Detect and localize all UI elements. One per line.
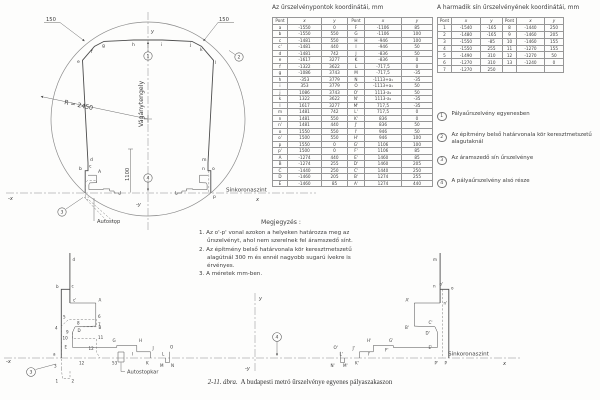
axis-minus-y-label: -y: [245, 366, 251, 372]
callout-2-leader: [229, 51, 235, 55]
point-label: E: [65, 345, 68, 350]
autostop-label: Autostop: [97, 219, 121, 225]
notes-title: Megjegyzés :: [261, 219, 451, 226]
third-rail-points-table: Pont x y Pont x y 1-1540-1658-14402502-1…: [437, 17, 564, 73]
point-label: 8: [77, 321, 80, 326]
point-label: D': [426, 331, 430, 336]
point-label: e: [77, 60, 80, 65]
point-label: G': [389, 338, 393, 343]
callout-3-num: 3: [30, 370, 33, 376]
point-label: N: [171, 363, 174, 368]
point-label: B': [405, 325, 409, 330]
detail-left-outline: [61, 253, 70, 358]
callout-3-num: 3: [61, 210, 64, 216]
callout-2-num: 2: [238, 55, 241, 61]
legend: 1 Pályaűrszelvény egyenesben 2 Az építmé…: [437, 111, 599, 188]
lower-pocket-right: [176, 175, 208, 194]
table-header-row: Pont x y Pont x y: [438, 18, 564, 25]
point-label: 3: [54, 364, 57, 369]
point-label: c: [72, 284, 74, 289]
point-label: h: [132, 42, 135, 48]
dim-150-right-label: 150: [219, 17, 229, 23]
point-label: D: [78, 328, 81, 333]
legend-text: Az építmény belső határvonala kör keresz…: [452, 132, 600, 146]
legend-item: 1 Pályaűrszelvény egyenesben: [437, 111, 599, 121]
point-label: A': [406, 298, 410, 303]
point-label: 4: [55, 326, 58, 331]
point-label: p: [213, 195, 216, 200]
legend-text: Pályaűrszelvény egyenesben: [452, 111, 530, 118]
legend-text: Az áramszedő sín űrszelvénye: [452, 155, 534, 162]
detail-left-pocket: [70, 303, 170, 362]
point-label: M: [160, 363, 164, 368]
table-row: 5-149031012-127050: [438, 52, 564, 59]
point-label: J': [352, 346, 355, 351]
point-label: m: [202, 158, 207, 163]
point-label: a: [53, 352, 56, 357]
point-label: H: [139, 338, 142, 343]
point-label: I: [132, 352, 133, 357]
legend-item: 4 A pályaűrszelvény alsó része: [437, 178, 599, 188]
table-row: 1-1540-1658-1440250: [438, 24, 564, 31]
axis-y-label: y: [150, 29, 155, 35]
callout-3-leader: [66, 198, 83, 210]
point-label: J: [152, 346, 154, 351]
point-label: K: [146, 361, 149, 366]
dim-53-label: 53: [112, 361, 118, 366]
point-label: A: [99, 298, 102, 303]
detail-diagram: Autostopkar 4 3 y -y -x x Sínkoronaszint…: [0, 245, 600, 395]
point-label: b: [79, 166, 82, 172]
point-label: n': [444, 301, 448, 306]
point-label: B: [99, 325, 102, 330]
legend-text: A pályaűrszelvény alsó része: [452, 178, 530, 185]
point-label: O: [170, 345, 173, 350]
callout-4-num: 4: [147, 176, 150, 182]
legend-num-1: 1: [437, 112, 447, 122]
table-row: 3-1550-8510-1460155: [438, 38, 564, 45]
dim-12-label: 12: [79, 361, 85, 366]
detail-right-outline: [440, 253, 449, 358]
rail-level-label: Sínkoronaszint: [226, 187, 268, 194]
point-label: 9: [66, 330, 69, 335]
point-label: n: [202, 167, 205, 172]
dim-150-left-leader: [44, 23, 85, 42]
point-label: o': [440, 282, 444, 287]
point-label: F': [385, 348, 388, 353]
dim-1100-label: 1100: [125, 168, 131, 181]
point-label: K': [355, 361, 359, 366]
table1-title: Az űrszelvénypontok koordinátái, mm: [272, 5, 383, 11]
table2-title: A harmadik sín űrszelvényének koordinátá…: [437, 5, 579, 11]
point-label: O': [334, 345, 338, 350]
track-axis-label: Vágánytengely: [137, 81, 145, 127]
callout-3-leader: [36, 364, 57, 370]
table-row: 6-127031013-12400: [438, 59, 564, 66]
table-row: 7-1270250: [438, 66, 564, 73]
figure-caption: 2-11. ábra.A budapesti metró űrszelvénye…: [0, 379, 600, 386]
note-line: 1. Az o'-p' vonal azokon a helyeken hatá…: [199, 229, 451, 237]
point-label: 5: [63, 315, 66, 320]
scanned-technical-figure: R = 2450 Vágánytengely 1100 150 150 1 2 …: [0, 0, 600, 400]
callout-4-num: 4: [276, 335, 279, 341]
point-label: c': [73, 298, 76, 303]
table-row: 4-155025511-1270155: [438, 45, 564, 52]
point-label: H': [367, 338, 371, 343]
autostop-arm-leader: [121, 363, 125, 372]
point-label: P: [445, 361, 448, 366]
axis-y-label: y: [258, 296, 263, 302]
callout-1-num: 1: [147, 54, 150, 60]
point-label: N': [331, 363, 335, 368]
point-label: o: [212, 167, 215, 172]
point-label: 11: [98, 335, 104, 340]
legend-item: 3 Az áramszedő sín űrszelvénye: [437, 155, 599, 165]
dim-150-right-leader: [204, 23, 235, 42]
point-label: d: [73, 257, 76, 262]
point-label: P': [435, 361, 439, 366]
point-label: G: [113, 338, 116, 343]
figure-title: A budapesti metró űrszelvénye egyenes pá…: [241, 379, 393, 386]
autostop-arm-label: Autostopkar: [127, 370, 159, 376]
point-label: g: [102, 44, 105, 49]
radius-label: R = 2450: [64, 99, 94, 112]
point-label: o: [451, 286, 454, 291]
table-row: 2-1480-1659-1460205: [438, 31, 564, 38]
axis-minus-x-label: -x: [6, 359, 12, 365]
point-label: d: [90, 157, 93, 163]
table-row: E-146085A'1274440: [273, 180, 433, 187]
legend-num-4: 4: [437, 179, 447, 189]
axis-minus-y-label: -y: [136, 202, 142, 208]
legend-num-3: 3: [437, 156, 447, 166]
clearance-points-table: Pont x y Pont x y a-15500F-110685b-15505…: [272, 17, 433, 187]
point-label: E': [429, 345, 433, 350]
axis-x-label: x: [502, 361, 507, 367]
radius-line: [41, 97, 148, 120]
autostop-arm: [118, 352, 124, 362]
axis-x-label: x: [255, 197, 260, 203]
point-label: k: [200, 47, 203, 53]
point-label: n: [433, 284, 436, 289]
center-cross: [144, 115, 152, 123]
point-label: j: [189, 42, 191, 48]
point-label: M': [343, 363, 348, 368]
rail-level-label: Sínkoronaszint: [448, 351, 490, 358]
legend-item: 2 Az építmény belső határvonala kör kere…: [437, 132, 599, 146]
axis-minus-x-label: -x: [8, 196, 14, 202]
point-label: L': [340, 352, 343, 357]
figure-number: 2-11. ábra.: [208, 379, 238, 386]
point-label: f: [91, 49, 93, 55]
dim-150-left-label: 150: [46, 17, 56, 23]
point-label: m: [433, 257, 437, 262]
point-label: l: [215, 60, 216, 66]
point-label: b: [56, 284, 59, 289]
point-label: 12: [89, 346, 95, 351]
point-label: 10: [63, 336, 69, 341]
point-label: L: [162, 352, 165, 357]
point-label: i: [161, 42, 162, 48]
point-label: I': [368, 352, 370, 357]
point-label: A: [98, 169, 102, 175]
point-label: c: [89, 165, 92, 170]
point-label: C': [429, 320, 433, 325]
point-label: 6: [98, 314, 101, 319]
lower-pocket-left: [88, 175, 120, 194]
legend-num-2: 2: [437, 133, 447, 143]
